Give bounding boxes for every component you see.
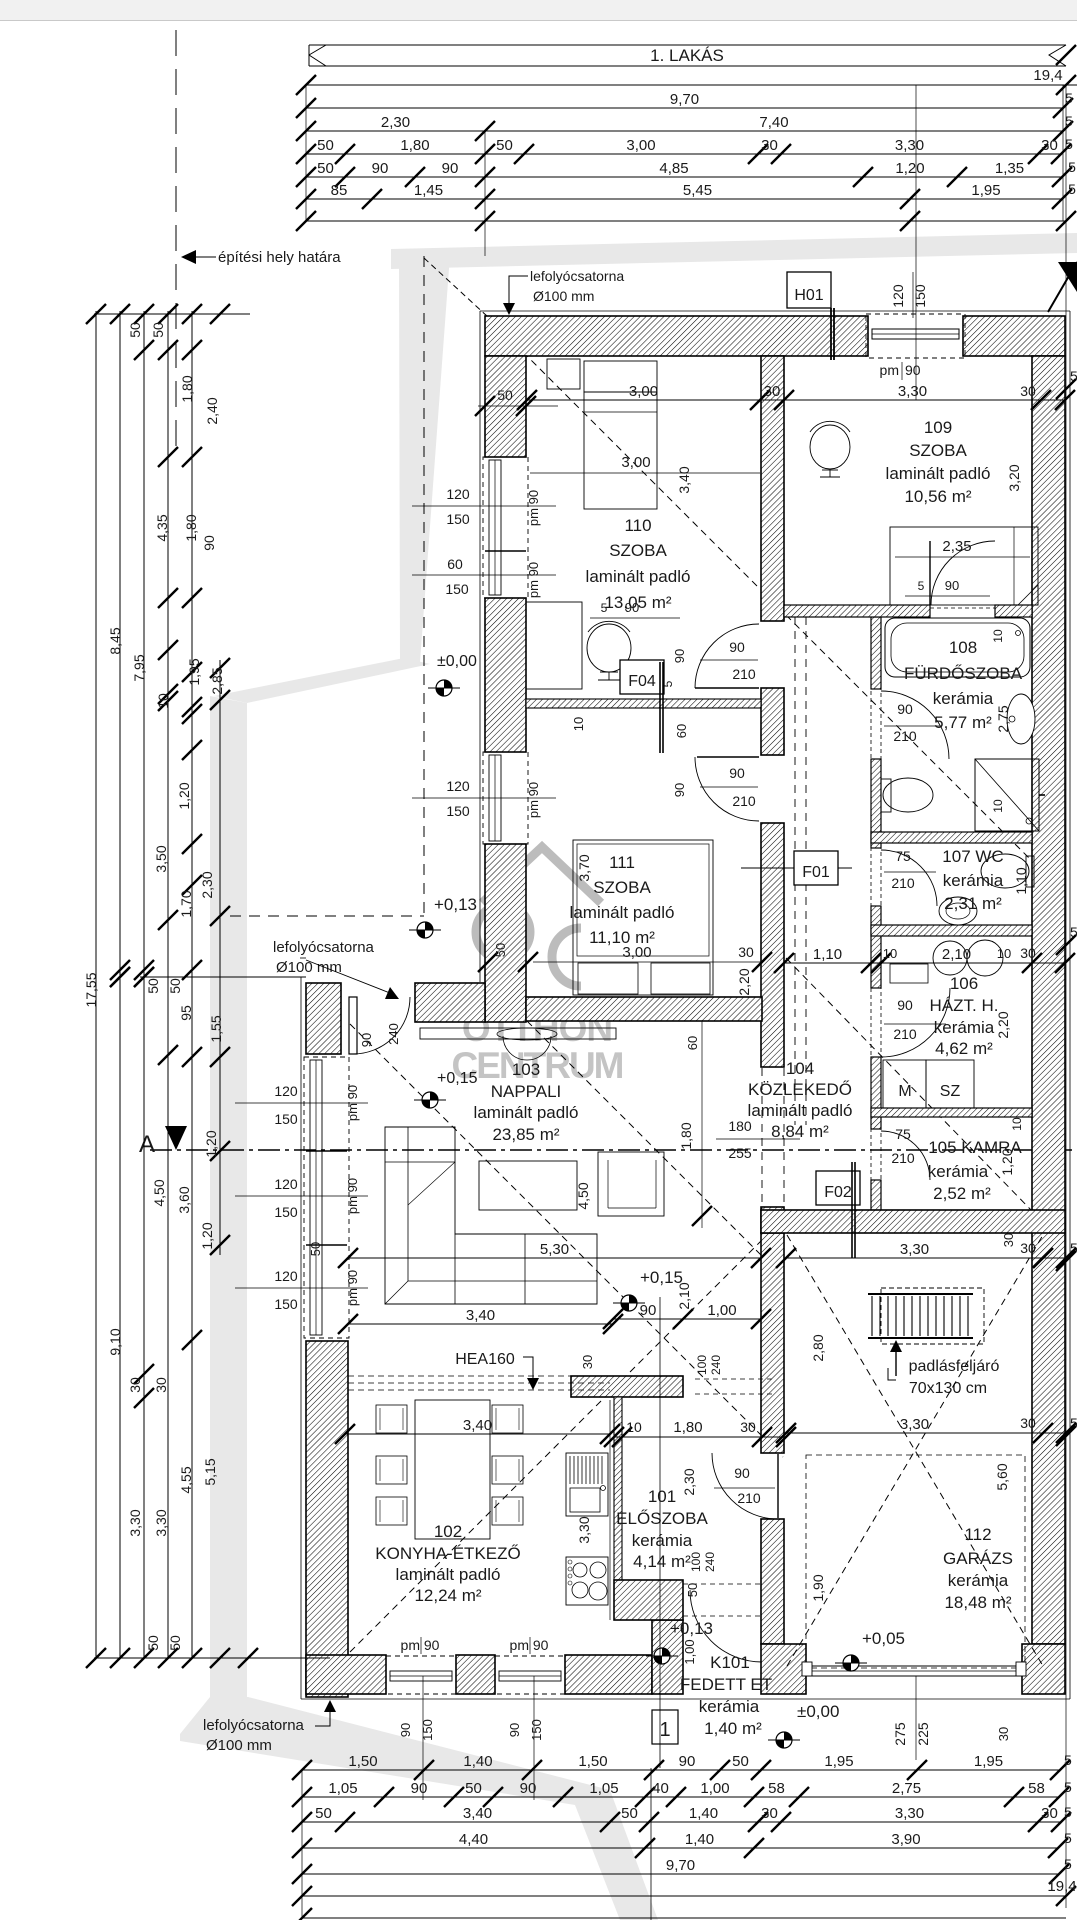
- svg-text:30: 30: [761, 137, 778, 154]
- svg-text:75: 75: [895, 848, 911, 864]
- svg-text:3,00: 3,00: [629, 383, 658, 400]
- svg-text:HÁZT. H.: HÁZT. H.: [930, 996, 999, 1015]
- svg-text:102: 102: [434, 1522, 462, 1541]
- svg-text:90: 90: [372, 160, 389, 177]
- svg-text:HEA160: HEA160: [455, 1351, 515, 1368]
- svg-text:4,50: 4,50: [151, 1179, 167, 1206]
- svg-text:3,30: 3,30: [127, 1509, 143, 1536]
- svg-text:50: 50: [127, 322, 143, 338]
- svg-text:90: 90: [201, 535, 217, 551]
- svg-text:85: 85: [331, 182, 348, 199]
- svg-text:120: 120: [274, 1083, 298, 1099]
- svg-text:pm 90: pm 90: [526, 490, 541, 526]
- svg-text:5,45: 5,45: [683, 182, 712, 199]
- svg-text:120: 120: [274, 1176, 298, 1192]
- svg-text:1,00: 1,00: [682, 1639, 697, 1664]
- svg-text:3,00: 3,00: [626, 137, 655, 154]
- svg-text:M: M: [898, 1083, 911, 1100]
- svg-text:50: 50: [493, 943, 508, 957]
- svg-text:30: 30: [1041, 137, 1058, 154]
- svg-text:5: 5: [1064, 1804, 1072, 1820]
- svg-text:106: 106: [950, 974, 978, 993]
- svg-text:laminált padló: laminált padló: [396, 1565, 501, 1584]
- svg-text:5: 5: [1064, 1856, 1072, 1872]
- svg-text:150: 150: [529, 1719, 544, 1741]
- svg-text:3,50: 3,50: [153, 845, 169, 872]
- svg-text:90: 90: [411, 1780, 428, 1797]
- svg-text:3,30: 3,30: [895, 137, 924, 154]
- svg-text:pm 90: pm 90: [345, 1270, 360, 1306]
- svg-text:1,45: 1,45: [414, 182, 443, 199]
- svg-text:2,30: 2,30: [381, 114, 410, 131]
- svg-text:90: 90: [734, 1465, 750, 1481]
- svg-text:210: 210: [732, 666, 756, 682]
- svg-text:3,30: 3,30: [900, 1241, 929, 1258]
- svg-text:1,10: 1,10: [813, 946, 842, 963]
- svg-text:50: 50: [167, 978, 183, 994]
- svg-text:90: 90: [897, 997, 913, 1013]
- svg-text:SZOBA: SZOBA: [593, 878, 651, 897]
- svg-text:±0,00: ±0,00: [437, 653, 477, 670]
- svg-text:5,77 m²: 5,77 m²: [934, 713, 992, 732]
- svg-text:3,40: 3,40: [466, 1307, 495, 1324]
- svg-text:5: 5: [1068, 181, 1076, 197]
- svg-text:7,40: 7,40: [759, 114, 788, 131]
- svg-text:90: 90: [679, 1753, 696, 1770]
- svg-text:H01: H01: [794, 287, 823, 304]
- svg-text:lefolyócsatorna: lefolyócsatorna: [203, 1717, 305, 1734]
- svg-text:3,30: 3,30: [900, 1416, 929, 1433]
- svg-text:pm: pm: [880, 362, 899, 378]
- svg-text:150: 150: [445, 581, 469, 597]
- svg-text:padlásfeljáró: padlásfeljáró: [909, 1358, 1000, 1375]
- svg-text:2,35: 2,35: [942, 538, 971, 555]
- svg-text:110: 110: [624, 516, 651, 535]
- svg-text:100: 100: [689, 1552, 703, 1572]
- svg-text:150: 150: [274, 1111, 298, 1127]
- svg-text:2,10: 2,10: [942, 946, 971, 963]
- svg-text:108: 108: [949, 638, 977, 657]
- svg-text:90: 90: [905, 362, 921, 378]
- svg-text:60: 60: [674, 724, 689, 738]
- svg-text:150: 150: [912, 284, 928, 308]
- svg-text:18,48 m²: 18,48 m²: [944, 1593, 1011, 1612]
- svg-text:90: 90: [359, 1033, 374, 1047]
- svg-text:1,00: 1,00: [700, 1780, 729, 1797]
- svg-text:laminált padló: laminált padló: [586, 567, 691, 586]
- svg-text:40: 40: [652, 1780, 669, 1797]
- svg-text:60: 60: [447, 556, 463, 572]
- svg-text:9,70: 9,70: [670, 91, 699, 108]
- svg-text:1. LAKÁS: 1. LAKÁS: [650, 46, 724, 65]
- svg-text:kerámia: kerámia: [928, 1162, 989, 1181]
- svg-text:kerámia: kerámia: [948, 1571, 1009, 1590]
- svg-text:A: A: [139, 1131, 155, 1158]
- svg-text:2,30: 2,30: [199, 871, 215, 898]
- svg-text:90: 90: [729, 639, 745, 655]
- svg-text:100: 100: [695, 1355, 709, 1375]
- svg-text:5: 5: [1068, 159, 1076, 175]
- svg-text:1,20: 1,20: [203, 1130, 219, 1157]
- svg-text:pm 90: pm 90: [345, 1178, 360, 1214]
- svg-text:1,10: 1,10: [1013, 867, 1029, 894]
- svg-text:90: 90: [640, 1302, 657, 1319]
- svg-text:30: 30: [1020, 945, 1036, 961]
- svg-text:1,40: 1,40: [463, 1753, 492, 1770]
- svg-text:8,45: 8,45: [107, 627, 123, 654]
- svg-text:3,40: 3,40: [463, 1417, 492, 1434]
- svg-text:210: 210: [732, 793, 756, 809]
- svg-text:90: 90: [672, 783, 687, 797]
- svg-text:1,20: 1,20: [176, 782, 192, 809]
- svg-text:10: 10: [1010, 1117, 1024, 1131]
- svg-text:111: 111: [609, 853, 635, 872]
- svg-text:1,80: 1,80: [183, 514, 199, 541]
- svg-text:30: 30: [764, 383, 781, 400]
- svg-text:225: 225: [915, 1722, 931, 1746]
- svg-text:90: 90: [520, 1780, 537, 1797]
- svg-text:255: 255: [728, 1145, 752, 1161]
- svg-text:7,95: 7,95: [131, 654, 147, 681]
- svg-text:1,20: 1,20: [999, 1148, 1015, 1175]
- svg-text:50: 50: [621, 1805, 638, 1822]
- svg-text:1,05: 1,05: [328, 1780, 357, 1797]
- svg-text:112: 112: [964, 1525, 991, 1544]
- svg-text:2,10: 2,10: [676, 1282, 692, 1309]
- svg-text:kerámia: kerámia: [699, 1697, 760, 1716]
- svg-text:30: 30: [761, 1805, 778, 1822]
- svg-text:2,40: 2,40: [204, 397, 220, 424]
- svg-text:SZOBA: SZOBA: [909, 441, 967, 460]
- svg-text:10: 10: [991, 799, 1005, 813]
- svg-text:1: 1: [659, 1719, 670, 1741]
- svg-text:30: 30: [1041, 1805, 1058, 1822]
- svg-text:107 WC: 107 WC: [942, 847, 1003, 866]
- svg-text:3,00: 3,00: [621, 454, 650, 471]
- svg-text:30: 30: [153, 1377, 169, 1393]
- svg-text:50: 50: [496, 137, 513, 154]
- svg-text:210: 210: [893, 728, 917, 744]
- svg-text:9,10: 9,10: [107, 1328, 123, 1355]
- svg-text:10: 10: [155, 693, 171, 709]
- svg-text:1,40: 1,40: [689, 1805, 718, 1822]
- svg-text:1,50: 1,50: [348, 1753, 377, 1770]
- svg-text:30: 30: [738, 944, 754, 960]
- svg-text:lefolyócsatorna: lefolyócsatorna: [273, 939, 375, 956]
- svg-text:KÖZLEKEDŐ: KÖZLEKEDŐ: [748, 1080, 852, 1099]
- svg-text:240: 240: [709, 1355, 723, 1375]
- svg-text:1,20: 1,20: [895, 160, 924, 177]
- svg-text:+0,13: +0,13: [670, 1619, 713, 1638]
- svg-text:4,85: 4,85: [659, 160, 688, 177]
- svg-text:FEDETT ET: FEDETT ET: [680, 1675, 772, 1694]
- svg-text:4,55: 4,55: [178, 1466, 194, 1493]
- svg-text:F04: F04: [628, 673, 656, 690]
- svg-text:ELŐSZOBA: ELŐSZOBA: [616, 1509, 708, 1528]
- svg-text:1,80: 1,80: [678, 1122, 694, 1149]
- svg-text:210: 210: [893, 1026, 917, 1042]
- svg-text:9,70: 9,70: [666, 1857, 695, 1874]
- svg-text:30: 30: [1020, 1415, 1036, 1431]
- svg-text:58: 58: [768, 1780, 785, 1797]
- svg-text:90: 90: [729, 765, 745, 781]
- svg-text:5: 5: [1064, 1779, 1072, 1795]
- svg-text:1,35: 1,35: [995, 160, 1024, 177]
- svg-text:kerámia: kerámia: [632, 1531, 693, 1550]
- svg-text:104: 104: [786, 1059, 814, 1078]
- svg-text:2,20: 2,20: [736, 968, 752, 995]
- svg-text:SZOBA: SZOBA: [609, 541, 667, 560]
- svg-text:2,80: 2,80: [810, 1334, 826, 1361]
- svg-text:1,40: 1,40: [685, 1831, 714, 1848]
- svg-text:150: 150: [274, 1204, 298, 1220]
- svg-text:50: 50: [308, 1242, 323, 1256]
- svg-text:F01: F01: [802, 864, 830, 881]
- svg-text:120: 120: [274, 1268, 298, 1284]
- svg-text:3,40: 3,40: [676, 466, 692, 493]
- svg-text:+0,13: +0,13: [434, 895, 477, 914]
- svg-text:150: 150: [420, 1719, 435, 1741]
- svg-text:5,60: 5,60: [994, 1463, 1010, 1490]
- svg-text:60: 60: [685, 1036, 700, 1050]
- svg-text:30: 30: [1001, 1233, 1016, 1247]
- svg-text:19,4: 19,4: [1047, 1878, 1076, 1895]
- svg-text:240: 240: [703, 1552, 717, 1572]
- svg-text:laminált padló: laminált padló: [474, 1103, 579, 1122]
- svg-text:3,30: 3,30: [895, 1805, 924, 1822]
- svg-text:17,55: 17,55: [83, 972, 99, 1007]
- svg-text:50: 50: [315, 1805, 332, 1822]
- svg-text:lefolyócsatorna: lefolyócsatorna: [530, 268, 624, 284]
- svg-text:laminált padló: laminált padló: [748, 1101, 853, 1120]
- svg-text:50: 50: [465, 1780, 482, 1797]
- svg-text:180: 180: [728, 1118, 752, 1134]
- svg-text:10: 10: [626, 1419, 642, 1435]
- svg-text:3,30: 3,30: [153, 1509, 169, 1536]
- svg-text:210: 210: [891, 875, 915, 891]
- svg-text:1,70: 1,70: [178, 890, 194, 917]
- svg-text:8,84 m²: 8,84 m²: [771, 1122, 829, 1141]
- svg-text:5: 5: [1064, 1752, 1072, 1768]
- svg-text:150: 150: [446, 511, 470, 527]
- svg-text:23,85 m²: 23,85 m²: [492, 1125, 559, 1144]
- svg-text:150: 150: [274, 1296, 298, 1312]
- svg-text:109: 109: [924, 418, 952, 437]
- svg-text:5: 5: [918, 579, 925, 593]
- svg-text:30: 30: [740, 1419, 756, 1435]
- svg-text:pm 90: pm 90: [345, 1085, 360, 1121]
- svg-text:2,20: 2,20: [995, 1011, 1011, 1038]
- svg-text:4,40: 4,40: [459, 1831, 488, 1848]
- svg-text:19,4: 19,4: [1033, 67, 1062, 84]
- svg-text:50: 50: [317, 137, 334, 154]
- svg-text:240: 240: [386, 1023, 401, 1045]
- svg-text:Ø100 mm: Ø100 mm: [206, 1737, 272, 1754]
- svg-text:+0,05: +0,05: [862, 1629, 905, 1648]
- svg-text:103: 103: [512, 1060, 540, 1079]
- svg-text:30: 30: [127, 1377, 143, 1393]
- svg-text:1,80: 1,80: [179, 375, 195, 402]
- svg-text:120: 120: [890, 284, 906, 308]
- svg-text:1,00: 1,00: [707, 1302, 736, 1319]
- svg-text:210: 210: [891, 1150, 915, 1166]
- svg-text:±0,00: ±0,00: [797, 1702, 839, 1721]
- svg-text:2,30: 2,30: [681, 1468, 697, 1495]
- svg-text:GARÁZS: GARÁZS: [943, 1549, 1013, 1568]
- svg-text:2,85: 2,85: [209, 667, 225, 694]
- svg-text:4,62 m²: 4,62 m²: [935, 1039, 993, 1058]
- svg-text:3,20: 3,20: [1006, 464, 1022, 491]
- svg-text:3,00: 3,00: [622, 944, 651, 961]
- svg-text:3,90: 3,90: [891, 1831, 920, 1848]
- svg-text:10: 10: [991, 629, 1005, 643]
- svg-text:3,30: 3,30: [576, 1516, 592, 1543]
- svg-text:5,15: 5,15: [202, 1458, 218, 1485]
- svg-text:1,95: 1,95: [971, 182, 1000, 199]
- svg-text:3,40: 3,40: [463, 1805, 492, 1822]
- svg-text:pm 90: pm 90: [401, 1637, 440, 1653]
- svg-text:KONYHA-ÉTKEZŐ: KONYHA-ÉTKEZŐ: [375, 1544, 520, 1563]
- svg-text:50: 50: [167, 1635, 183, 1651]
- svg-text:1,90: 1,90: [810, 1574, 826, 1601]
- svg-text:laminált padló: laminált padló: [886, 464, 991, 483]
- svg-text:50: 50: [145, 978, 161, 994]
- svg-text:30: 30: [580, 1355, 595, 1369]
- svg-text:210: 210: [737, 1490, 761, 1506]
- svg-text:kerámia: kerámia: [933, 689, 994, 708]
- svg-text:1,80: 1,80: [673, 1419, 702, 1436]
- svg-text:5: 5: [1064, 1830, 1072, 1846]
- svg-text:90: 90: [672, 649, 687, 663]
- svg-text:2,75: 2,75: [995, 705, 1011, 732]
- svg-text:50: 50: [685, 1583, 700, 1597]
- svg-text:1,95: 1,95: [824, 1753, 853, 1770]
- svg-text:90: 90: [442, 160, 459, 177]
- svg-text:50: 50: [317, 160, 334, 177]
- svg-text:pm 90: pm 90: [510, 1637, 549, 1653]
- svg-text:30: 30: [996, 1727, 1011, 1741]
- svg-text:58: 58: [1028, 1780, 1045, 1797]
- svg-text:4,35: 4,35: [154, 514, 170, 541]
- svg-text:2,31 m²: 2,31 m²: [944, 894, 1002, 913]
- svg-text:kerámia: kerámia: [934, 1018, 995, 1037]
- svg-text:laminált padló: laminált padló: [570, 903, 675, 922]
- svg-text:101: 101: [648, 1487, 676, 1506]
- svg-text:50: 50: [732, 1753, 749, 1770]
- svg-text:1,40 m²: 1,40 m²: [704, 1719, 762, 1738]
- svg-text:F02: F02: [824, 1184, 852, 1201]
- svg-text:90: 90: [507, 1723, 522, 1737]
- svg-text:90: 90: [945, 578, 959, 593]
- svg-text:50: 50: [150, 322, 166, 338]
- svg-text:30: 30: [1020, 383, 1036, 399]
- svg-text:építési hely határa: építési hely határa: [218, 249, 341, 266]
- svg-text:2,52 m²: 2,52 m²: [933, 1184, 991, 1203]
- svg-text:+0,15: +0,15: [437, 1070, 478, 1087]
- svg-text:Ø100 mm: Ø100 mm: [533, 288, 594, 304]
- svg-text:3,70: 3,70: [576, 854, 592, 881]
- svg-text:1,50: 1,50: [578, 1753, 607, 1770]
- svg-text:120: 120: [446, 486, 470, 502]
- svg-text:K101: K101: [710, 1653, 750, 1672]
- svg-text:3,60: 3,60: [176, 1186, 192, 1213]
- svg-text:150: 150: [446, 803, 470, 819]
- svg-text:4,50: 4,50: [575, 1182, 591, 1209]
- svg-text:1,95: 1,95: [186, 658, 202, 685]
- svg-text:30: 30: [1020, 1240, 1036, 1256]
- svg-text:95: 95: [178, 1005, 194, 1021]
- svg-text:SZ: SZ: [940, 1083, 961, 1100]
- svg-text:50: 50: [497, 387, 513, 403]
- svg-text:13,05 m²: 13,05 m²: [604, 593, 671, 612]
- svg-text:275: 275: [892, 1722, 908, 1746]
- svg-text:5,30: 5,30: [540, 1241, 569, 1258]
- svg-text:1,80: 1,80: [400, 137, 429, 154]
- svg-text:75: 75: [895, 1126, 911, 1142]
- svg-text:pm 90: pm 90: [526, 782, 541, 818]
- svg-text:1,95: 1,95: [974, 1753, 1003, 1770]
- svg-text:10: 10: [571, 717, 586, 731]
- svg-text:50: 50: [145, 1635, 161, 1651]
- svg-text:1,55: 1,55: [208, 1015, 224, 1042]
- svg-text:10: 10: [997, 946, 1011, 961]
- svg-text:4,14 m²: 4,14 m²: [633, 1552, 691, 1571]
- svg-text:1,05: 1,05: [589, 1780, 618, 1797]
- svg-text:FÜRDŐSZOBA: FÜRDŐSZOBA: [904, 664, 1023, 683]
- svg-text:10: 10: [883, 946, 897, 961]
- svg-text:kerámia: kerámia: [943, 871, 1004, 890]
- svg-text:120: 120: [446, 778, 470, 794]
- svg-text:90: 90: [398, 1723, 413, 1737]
- svg-text:1,20: 1,20: [199, 1222, 215, 1249]
- svg-text:12,24 m²: 12,24 m²: [414, 1586, 481, 1605]
- svg-text:3,30: 3,30: [898, 383, 927, 400]
- svg-text:90: 90: [897, 701, 913, 717]
- svg-text:2,75: 2,75: [892, 1780, 921, 1797]
- svg-text:10,56 m²: 10,56 m²: [904, 487, 971, 506]
- svg-text:pm 90: pm 90: [526, 562, 541, 598]
- svg-text:NAPPALI: NAPPALI: [491, 1082, 562, 1101]
